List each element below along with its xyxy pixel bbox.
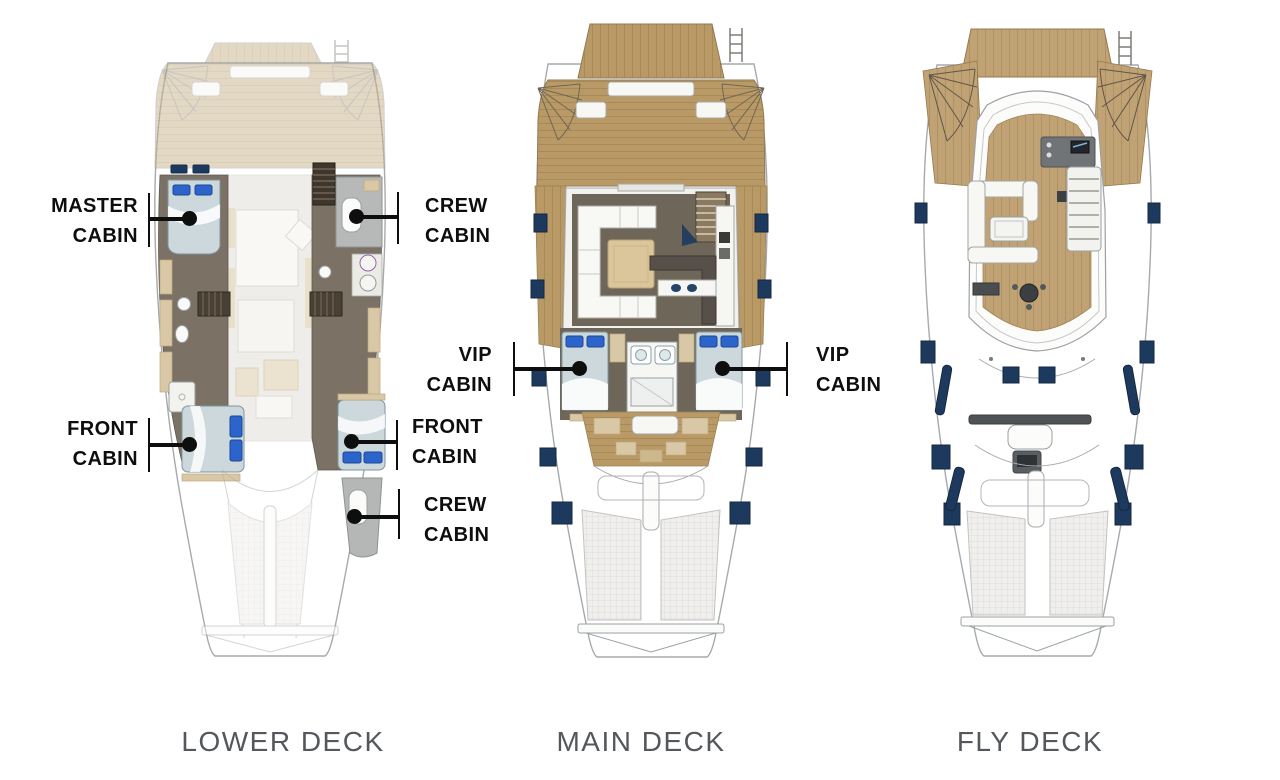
stairs-to-main-deck: [1067, 167, 1101, 251]
aft-deck: [155, 63, 385, 168]
swim-platform: [578, 24, 724, 78]
sink: [636, 350, 647, 361]
wet-bar: [973, 283, 999, 295]
bed-pillow: [700, 336, 717, 347]
label-line: CABIN: [38, 221, 138, 251]
label-dot: [347, 509, 362, 524]
forward-cockpit: [582, 412, 720, 466]
bed-pillow: [195, 185, 212, 195]
helm-console: [1041, 137, 1095, 167]
sink: [687, 284, 697, 292]
hatch-window: [193, 165, 209, 173]
label-line: FRONT: [412, 412, 512, 442]
cockpit-bench: [230, 66, 310, 78]
label-connector: [515, 367, 580, 371]
caption-main-deck: MAIN DECK: [531, 726, 751, 758]
lower-aft-deck-faded: [155, 40, 385, 168]
cockpit-bench: [696, 102, 726, 118]
vip-bathroom: [627, 342, 677, 412]
cockpit-seat: [682, 418, 708, 434]
label-tick: [396, 420, 398, 470]
bowsprit-spine: [264, 506, 276, 628]
bed-pillow: [173, 185, 190, 195]
hull-stairs-hatch: [310, 292, 342, 316]
hatch-window: [171, 165, 187, 173]
deck-hatch: [1003, 367, 1019, 383]
trampoline-left: [967, 511, 1025, 615]
front-cabin-bed-right: [338, 400, 385, 470]
bed-pillow: [721, 336, 738, 347]
cockpit-bench: [320, 82, 348, 96]
label-master-cabin: MASTER CABIN: [38, 191, 138, 251]
main-deck-plan: [520, 18, 782, 666]
cockpit-seat: [594, 418, 620, 434]
label-tick: [398, 489, 400, 539]
label-line: CABIN: [392, 370, 492, 400]
label-vip-cabin-left: VIP CABIN: [392, 340, 492, 400]
label-front-cabin-right: FRONT CABIN: [412, 412, 512, 472]
sink: [178, 298, 191, 311]
vip-cabin-zone: [560, 328, 742, 421]
bed-pillow: [230, 416, 242, 437]
boarding-ladder-icon: [730, 28, 742, 62]
fly-deck-plan: [905, 25, 1170, 665]
lower-deck-plan: [140, 8, 400, 668]
deck-hatch: [1057, 191, 1068, 202]
label-dot: [344, 434, 359, 449]
label-line: CABIN: [425, 221, 525, 251]
label-dot: [572, 361, 587, 376]
bed-pillow: [230, 440, 242, 461]
sink: [671, 284, 681, 292]
cockpit-bench: [608, 82, 694, 96]
side-deck-right: [736, 186, 767, 348]
sliding-door: [618, 184, 684, 191]
bed-pillow: [566, 336, 583, 347]
bow-crossbeam: [202, 626, 338, 635]
label-line: FRONT: [38, 414, 138, 444]
trampoline-left: [582, 510, 641, 620]
cockpit-seat: [666, 442, 686, 455]
label-front-cabin-left: FRONT CABIN: [38, 414, 138, 474]
label-line: MASTER: [38, 191, 138, 221]
label-line: VIP: [816, 340, 916, 370]
label-dot: [182, 437, 197, 452]
label-line: CABIN: [38, 444, 138, 474]
label-dot: [349, 209, 364, 224]
trampoline-right: [1050, 511, 1108, 615]
label-vip-cabin-right: VIP CABIN: [816, 340, 916, 400]
label-line: VIP: [392, 340, 492, 370]
appliance: [719, 248, 730, 259]
wardrobe: [679, 334, 694, 362]
caption-lower-deck: LOWER DECK: [173, 726, 393, 758]
round-table: [1020, 284, 1038, 302]
wardrobe: [160, 300, 172, 346]
sink: [319, 266, 331, 278]
label-crew-cabin-bottom: CREW CABIN: [424, 490, 524, 550]
mast-pod: [1008, 425, 1052, 449]
label-connector: [723, 367, 786, 371]
label-dot: [182, 211, 197, 226]
label-dot: [715, 361, 730, 376]
swim-platform: [961, 29, 1114, 77]
label-line: CABIN: [412, 442, 512, 472]
side-deck-left: [535, 186, 566, 348]
wardrobe: [368, 358, 380, 396]
yacht-deck-plans-figure: MASTER CABIN CREW CABIN FRONT CABIN FRON…: [0, 0, 1280, 780]
label-line: CABIN: [816, 370, 916, 400]
toilet: [176, 326, 189, 343]
traveller-track: [969, 415, 1091, 424]
appliance: [719, 232, 730, 243]
cockpit-seat: [616, 442, 636, 455]
coffee-table: [608, 240, 654, 288]
bow-crossbeam: [961, 617, 1114, 626]
cockpit-table: [632, 416, 678, 434]
washer-icon: [360, 255, 376, 271]
label-line: CREW: [425, 191, 525, 221]
label-line: CREW: [424, 490, 524, 520]
label-crew-cabin-top: CREW CABIN: [425, 191, 525, 251]
label-line: CABIN: [424, 520, 524, 550]
bed-pillow: [364, 452, 382, 463]
wardrobe: [610, 334, 625, 362]
cockpit-bench: [576, 102, 606, 118]
galley-counter: [716, 206, 734, 326]
boarding-ladder-icon: [1119, 31, 1131, 65]
label-tick: [786, 342, 788, 396]
hull-stairs-hatch: [198, 292, 230, 316]
sink: [660, 350, 671, 361]
flybridge: [968, 91, 1106, 351]
bed-pillow: [343, 452, 361, 463]
companionway-stairs: [313, 163, 335, 205]
swim-platform: [205, 43, 321, 63]
label-tick: [397, 192, 399, 244]
bowsprit-spine: [643, 472, 659, 530]
caption-fly-deck: FLY DECK: [920, 726, 1140, 758]
bow-crossbeam: [578, 624, 724, 633]
cockpit-bench: [192, 82, 220, 96]
wardrobe: [160, 260, 172, 294]
deck-hatch: [1039, 367, 1055, 383]
lower-salon-faded: [228, 175, 316, 441]
washer-icon: [360, 275, 376, 291]
bowsprit-spine: [1028, 471, 1044, 527]
wardrobe: [368, 308, 380, 352]
trampoline-right: [661, 510, 720, 620]
bed-pillow: [587, 336, 604, 347]
salon: [563, 184, 739, 332]
